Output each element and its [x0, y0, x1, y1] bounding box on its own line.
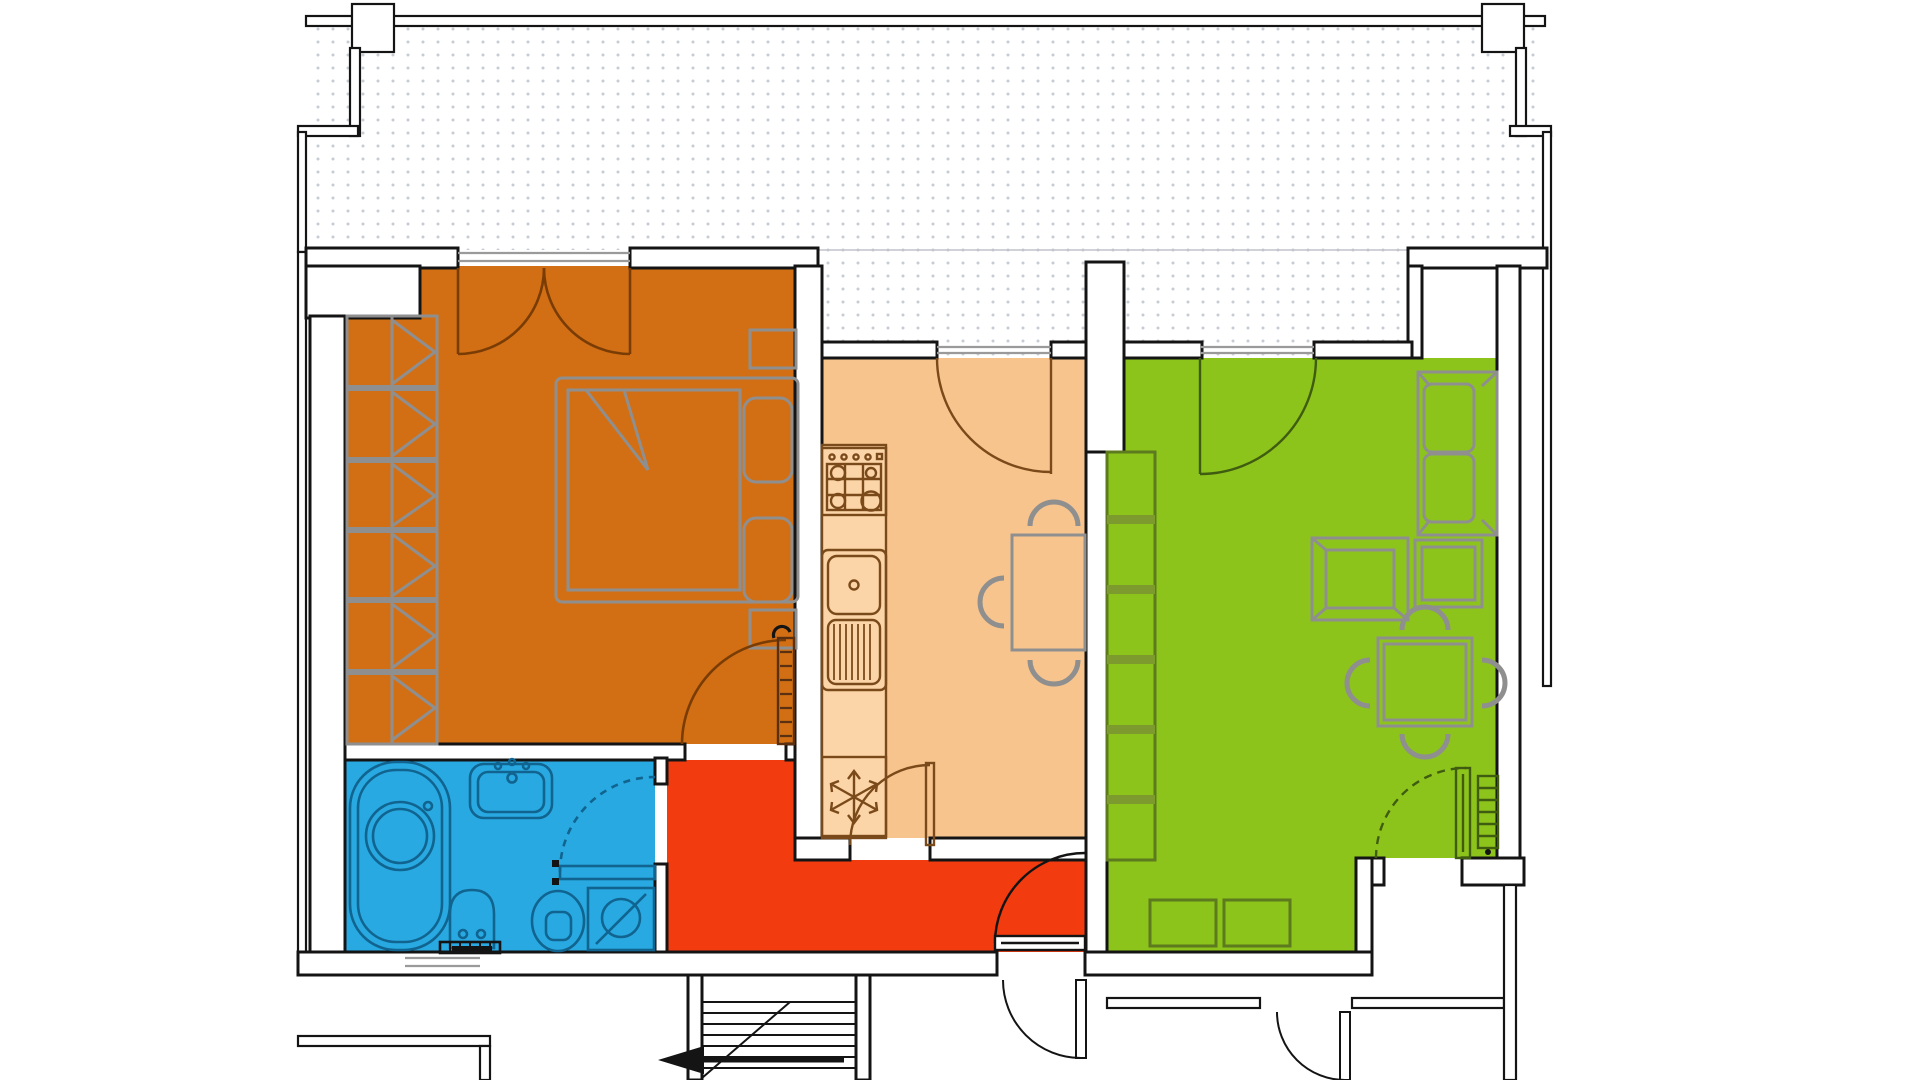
landing-door-left-leaf — [1076, 980, 1086, 1058]
pier-kitchen-living — [1086, 262, 1124, 452]
floor-plan-drawing — [0, 0, 1920, 1080]
wall-bottom-mid — [1085, 952, 1372, 975]
outer-wall-right — [1543, 132, 1551, 686]
bedroom-balcony-sill — [458, 253, 630, 261]
landing-door-right-leaf — [1340, 1012, 1350, 1080]
wall-bathroom-hall-b — [655, 864, 667, 952]
landing-door-left-arc — [1003, 980, 1081, 1058]
wall-left — [310, 316, 345, 952]
wall-bottom-left — [298, 952, 997, 975]
floor-plan-page — [0, 0, 1920, 1080]
wall-bedroom-bathroom — [345, 744, 685, 760]
wall-bathroom-hall-a — [655, 758, 667, 784]
wall-living-top — [1314, 342, 1412, 358]
wall-kitchen-bottom-a — [795, 838, 850, 860]
landing-door-right-arc — [1277, 1012, 1345, 1080]
living-room-floor — [1107, 358, 1497, 952]
terrace-pier-top-left — [352, 4, 394, 52]
wall-living-bottom-b — [1462, 858, 1524, 885]
bathroom-floor — [345, 758, 655, 952]
terrace-pier-top-right — [1482, 4, 1524, 52]
kitchen-counter — [822, 445, 886, 838]
wall-living-right — [1497, 266, 1520, 885]
wall-top-right — [1408, 248, 1547, 268]
wall-kitchen-bottom-b — [930, 838, 1088, 860]
terrace-parapet-top — [306, 16, 1545, 26]
stairwell-wall-right — [856, 975, 870, 1080]
wall-top-mid — [630, 248, 818, 268]
direction-arrow-head — [658, 1046, 704, 1074]
landing-doors — [1003, 980, 1350, 1080]
wall-kitchen-living-lower — [1086, 452, 1107, 975]
wall-kitchen-top — [818, 342, 937, 358]
terrace-floor — [306, 26, 1545, 250]
terrace-parapet-left — [298, 132, 306, 252]
pier-bedroom-corner — [306, 266, 420, 318]
outer-wall-left — [298, 252, 306, 975]
